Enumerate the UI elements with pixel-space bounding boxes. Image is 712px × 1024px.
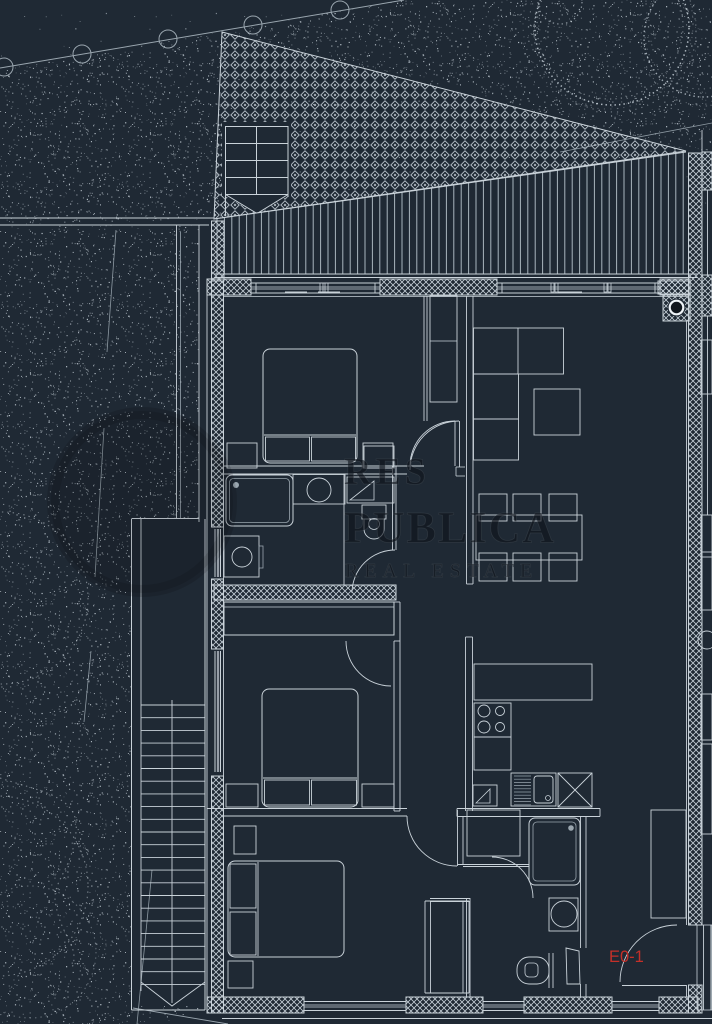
svg-text:REAL ESTATE: REAL ESTATE [345,560,538,582]
svg-text:RES: RES [344,451,430,493]
svg-text:E0-1: E0-1 [609,948,644,966]
svg-text:PUBLICA: PUBLICA [344,503,556,552]
